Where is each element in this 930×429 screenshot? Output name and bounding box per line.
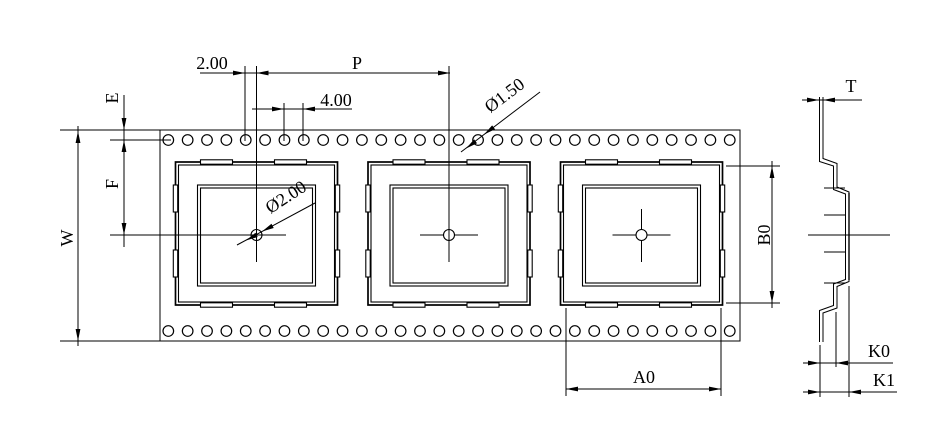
sprocket-hole <box>492 135 503 146</box>
dim-label-B0: B0 <box>754 224 774 245</box>
sprocket-hole <box>163 326 174 337</box>
dim-pocket-width-A0: A0 <box>566 308 721 396</box>
sprocket-hole <box>724 326 735 337</box>
arrowhead <box>709 387 721 392</box>
dim-edge-margin-E: E <box>60 93 171 248</box>
pocket-tab <box>586 160 618 164</box>
pocket-tab <box>720 250 724 277</box>
sprocket-hole <box>376 135 387 146</box>
pocket-tab <box>201 303 233 307</box>
sprocket-hole <box>531 326 542 337</box>
pocket-tab <box>467 160 499 164</box>
sprocket-hole <box>473 326 484 337</box>
arrowhead <box>76 131 81 143</box>
dim-hole-offset-2mm: 2.00 <box>196 53 450 262</box>
arrowhead <box>303 107 315 112</box>
sprocket-hole <box>260 135 271 146</box>
sprocket-hole <box>647 326 658 337</box>
arrowhead <box>808 361 820 366</box>
dimension-arrowheads <box>76 71 861 395</box>
sprocket-hole <box>492 326 503 337</box>
sprocket-hole <box>686 326 697 337</box>
arrowhead <box>438 71 450 76</box>
pocket-tab <box>173 250 177 277</box>
sprocket-hole <box>531 135 542 146</box>
sprocket-hole <box>376 326 387 337</box>
arrowhead <box>808 390 820 395</box>
arrowhead <box>566 387 578 392</box>
sprocket-hole <box>240 326 251 337</box>
dim-label-K1: K1 <box>873 370 895 390</box>
sprocket-hole <box>589 326 600 337</box>
pocket-tab <box>275 303 307 307</box>
sprocket-hole <box>686 135 697 146</box>
sprocket-hole <box>511 326 522 337</box>
pocket-tab <box>393 303 425 307</box>
sprocket-holes-bottom-row <box>163 326 735 337</box>
sprocket-hole <box>570 135 581 146</box>
sprocket-hole <box>570 326 581 337</box>
sprocket-hole <box>279 326 290 337</box>
arrowhead <box>770 166 775 178</box>
sprocket-hole <box>260 326 271 337</box>
pocket-tab <box>660 303 692 307</box>
pocket-tab <box>660 160 692 164</box>
sprocket-hole <box>628 326 639 337</box>
dim-label-hole-dia: Ø1.50 <box>481 74 529 117</box>
sprocket-hole <box>357 135 368 146</box>
pocket-tab <box>366 250 370 277</box>
pocket-tab <box>393 160 425 164</box>
sprocket-hole <box>415 326 426 337</box>
arrowhead <box>261 224 274 234</box>
sprocket-hole <box>337 326 348 337</box>
sprocket-hole <box>395 326 406 337</box>
pocket-tab <box>366 185 370 212</box>
sprocket-hole <box>550 326 561 337</box>
pocket-tab <box>335 250 339 277</box>
sprocket-hole <box>202 326 213 337</box>
sprocket-hole <box>299 135 310 146</box>
sprocket-hole <box>666 326 677 337</box>
carrier-tape-drawing: 2.00 P 4.00 Ø1.50 Ø2.00 E <box>0 0 930 429</box>
sprocket-hole <box>453 326 464 337</box>
arrowhead <box>122 223 127 235</box>
dim-label-W: W <box>57 230 77 247</box>
dim-hole-pitch-4mm: 4.00 <box>252 90 352 141</box>
dim-label-T: T <box>846 76 857 96</box>
pocket-tab <box>467 303 499 307</box>
arrowhead <box>770 291 775 303</box>
sprocket-hole <box>724 135 735 146</box>
dim-label-4mm: 4.00 <box>320 90 352 110</box>
sprocket-hole <box>705 135 716 146</box>
sprocket-hole <box>705 326 716 337</box>
pocket-tab <box>558 185 562 212</box>
pocket-tab <box>720 185 724 212</box>
sprocket-hole <box>299 326 310 337</box>
arrowhead <box>122 118 127 130</box>
dim-label-A0: A0 <box>633 367 655 387</box>
sprocket-hole <box>608 135 619 146</box>
pocket-tab <box>173 185 177 212</box>
dim-pocket-length-B0: B0 <box>726 161 780 308</box>
arrowhead <box>807 98 819 103</box>
pocket-tab <box>528 185 532 212</box>
sprocket-hole <box>589 135 600 146</box>
dim-label-center-dia: Ø2.00 <box>262 176 310 217</box>
arrowhead <box>257 71 269 76</box>
dim-label-E: E <box>102 93 122 104</box>
sprocket-hole <box>628 135 639 146</box>
sprocket-hole <box>202 135 213 146</box>
pocket-tab <box>528 250 532 277</box>
sprocket-hole <box>608 326 619 337</box>
sprocket-hole <box>666 135 677 146</box>
arrowhead <box>233 71 245 76</box>
sprocket-hole <box>415 135 426 146</box>
sprocket-hole <box>318 326 329 337</box>
arrowhead <box>122 140 127 152</box>
pocket-tab <box>586 303 618 307</box>
arrowhead <box>76 329 81 341</box>
pocket <box>558 160 724 307</box>
sprocket-hole <box>647 135 658 146</box>
pocket-tab <box>335 185 339 212</box>
sprocket-hole <box>182 326 193 337</box>
sprocket-hole <box>240 135 251 146</box>
arrowhead <box>836 361 848 366</box>
sprocket-hole <box>221 135 232 146</box>
arrowhead <box>272 107 284 112</box>
pocket-tab <box>201 160 233 164</box>
arrowhead <box>849 390 861 395</box>
arrowhead <box>823 98 835 103</box>
sprocket-hole <box>357 326 368 337</box>
dim-tape-width-W: W <box>57 126 160 346</box>
carrier-tape-drawing-page: 2.00 P 4.00 Ø1.50 Ø2.00 E <box>0 0 930 429</box>
dim-label-F: F <box>102 179 122 189</box>
sprocket-hole <box>434 326 445 337</box>
dim-label-K0: K0 <box>868 341 890 361</box>
pocket-tab <box>275 160 307 164</box>
sprocket-hole <box>395 135 406 146</box>
sprocket-hole <box>453 135 464 146</box>
sprocket-hole <box>221 326 232 337</box>
sprocket-hole <box>550 135 561 146</box>
pocket-center-hole <box>636 230 647 241</box>
sprocket-hole <box>182 135 193 146</box>
dim-label-2mm: 2.00 <box>196 53 228 73</box>
dimensions: 2.00 P 4.00 Ø1.50 Ø2.00 E <box>57 53 897 397</box>
dim-hole-to-center-F: F <box>102 179 286 235</box>
sprocket-hole <box>337 135 348 146</box>
sprocket-hole <box>434 135 445 146</box>
sprocket-hole <box>511 135 522 146</box>
pocket-tab <box>558 250 562 277</box>
dim-label-P: P <box>352 53 362 73</box>
dim-pocket-pitch-P: P <box>352 53 449 260</box>
sprocket-hole <box>318 135 329 146</box>
dim-tape-thickness-T: T <box>802 76 862 100</box>
